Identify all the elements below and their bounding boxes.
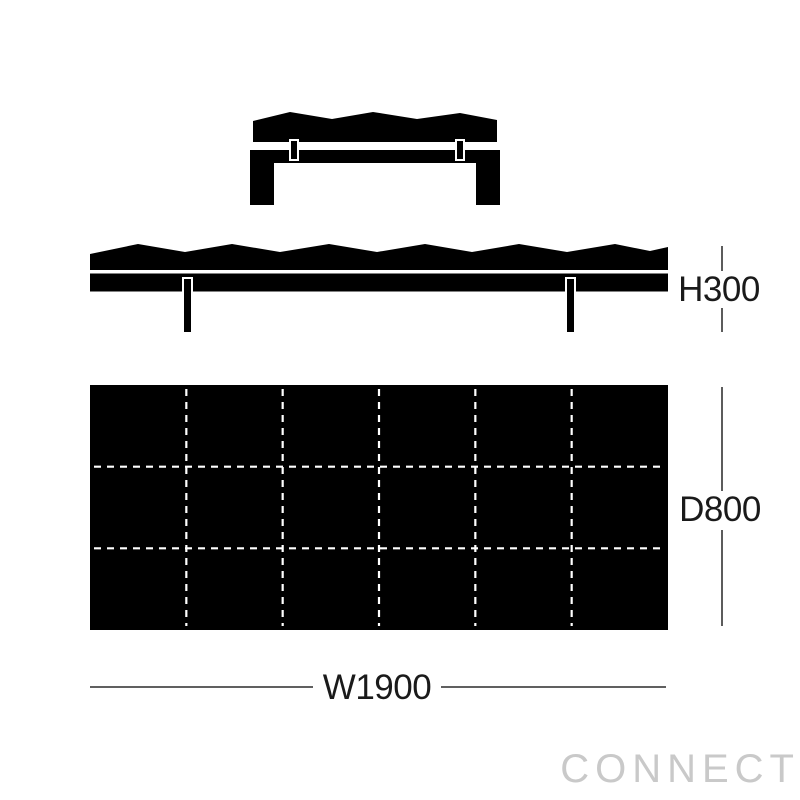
height-dim-label: H300 xyxy=(649,272,789,307)
width-dim-label: W1900 xyxy=(287,670,467,705)
side-view-cushion xyxy=(90,244,668,270)
end-view xyxy=(250,112,500,205)
depth-dim-label: D800 xyxy=(650,492,790,527)
side-view-left-leg xyxy=(183,278,192,333)
end-view-right-leg xyxy=(476,150,500,205)
side-view xyxy=(90,244,668,333)
end-view-right-pin xyxy=(456,140,464,160)
side-view-right-leg xyxy=(566,278,575,333)
product-dimension-diagram: H300 D800 W1900 CONNECT xyxy=(0,0,800,800)
side-view-frame xyxy=(90,274,668,292)
end-view-left-leg xyxy=(250,150,274,205)
plan-view xyxy=(90,385,668,630)
end-view-left-pin xyxy=(290,140,298,160)
watermark: CONNECT xyxy=(560,749,800,789)
end-view-cushion xyxy=(253,112,497,142)
